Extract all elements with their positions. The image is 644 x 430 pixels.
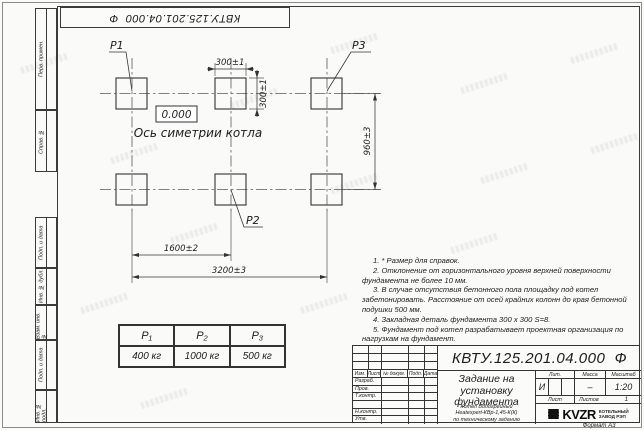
sheet-label: Лист — [536, 396, 575, 403]
note-item: 3. В случае отсутствия бетонного пола пл… — [362, 285, 638, 314]
scale-label: Масштаб — [606, 371, 641, 378]
lit-cell-empty — [562, 379, 575, 395]
dim-960: 960±3 — [363, 127, 373, 156]
load-table-header-row: P₁ P₂ P₃ — [119, 325, 285, 346]
label-p1: P1 — [110, 39, 124, 52]
load-table-header: P₂ — [174, 325, 229, 346]
title-block: Изм. Лист № докум. Подп. Дата Разраб. Пр… — [352, 345, 640, 423]
symmetry-axis-label: Ось симетрии котла — [134, 126, 262, 140]
sheets-value: 1 — [625, 397, 628, 403]
lit-label: Лит. — [536, 371, 575, 378]
note-item: 1. * Размер для справок. — [362, 256, 638, 266]
dim-300-width: 300±1 — [216, 58, 245, 68]
kvzr-logo-text: KVZR — [562, 407, 595, 422]
document-designation: КВТУ.125.201.04.000 Ф — [438, 346, 641, 371]
load-value: 500 кг — [230, 346, 285, 367]
sig-row-nkontr: Н.контр. — [353, 409, 437, 417]
sig-row-razrab: Разраб. — [353, 378, 437, 386]
note-item: 2. Отклонение от горизонтального уровня … — [362, 266, 638, 286]
sheets-label: Листов — [579, 397, 599, 403]
col-data: Дата — [424, 370, 437, 377]
kvzr-logo-icon — [548, 409, 559, 420]
lit-mass-scale-values: И – 1:20 — [536, 379, 641, 396]
dim-1600: 1600±2 — [164, 244, 198, 254]
load-table-header: P₃ — [230, 325, 285, 346]
lit-cell-empty — [549, 379, 562, 395]
mass-label: Масса — [575, 371, 606, 378]
load-table-header: P₁ — [119, 325, 174, 346]
document-subtitle: Котел Водогрейный Heatexpert-КВр-1,45-К(… — [438, 404, 535, 423]
signature-rows: Разраб. Пров. Т.контр. Н.контр. Утв. — [353, 378, 438, 424]
load-value: 400 кг — [119, 346, 174, 367]
company-logo-cell: KVZR КОТЕЛЬНЫЙ ЗАВОД РЭП — [536, 404, 641, 424]
load-table-value-row: 400 кг 1000 кг 500 кг — [119, 346, 285, 367]
lit-value: И — [536, 379, 549, 395]
sig-row-blank — [353, 401, 437, 409]
sig-row-prov: Пров. — [353, 386, 437, 394]
sig-row-tkontr: Т.контр. — [353, 393, 437, 401]
col-podp: Подп. — [408, 370, 424, 377]
company-name: КОТЕЛЬНЫЙ ЗАВОД РЭП — [599, 409, 629, 420]
change-table-header: Изм. Лист № докум. Подп. Дата — [353, 369, 438, 378]
change-table-empty-rows — [353, 346, 438, 369]
drawing-sheet: КВТУ.125.201.04.000 Ф Перв. примен. Спра… — [0, 0, 644, 430]
elevation-mark: 0.000 — [161, 109, 191, 121]
notes-block: 1. * Размер для справок. 2. Отклонение о… — [362, 256, 638, 344]
lit-mass-scale-header: Лит. Масса Масштаб — [536, 371, 641, 379]
sheet-row: Лист Листов 1 — [536, 396, 641, 404]
note-item: 5. Фундамент под котел разрабатывает про… — [362, 325, 638, 345]
foundation-columns — [116, 78, 342, 205]
format-label: Формат А3 — [556, 423, 642, 429]
col-dokum: № докум. — [381, 370, 408, 377]
col-list: Лист — [368, 370, 381, 377]
mass-value: – — [575, 379, 606, 395]
col-izm: Изм. — [353, 370, 368, 377]
sig-row-utv: Утв. — [353, 416, 437, 424]
scale-value: 1:20 — [606, 379, 641, 395]
dim-3200: 3200±3 — [212, 266, 246, 276]
note-item: 4. Закладная деталь фундамента 300 х 300… — [362, 315, 638, 325]
label-p2: P2 — [246, 214, 260, 227]
load-value: 1000 кг — [174, 346, 229, 367]
dim-300-height: 300±1 — [259, 79, 269, 108]
document-title-cell: Задание на установку фундамента Котел Во… — [438, 371, 536, 424]
load-table: P₁ P₂ P₃ 400 кг 1000 кг 500 кг — [118, 324, 286, 368]
sheets-cell: Листов 1 — [575, 396, 641, 403]
label-p3: P3 — [352, 39, 366, 52]
